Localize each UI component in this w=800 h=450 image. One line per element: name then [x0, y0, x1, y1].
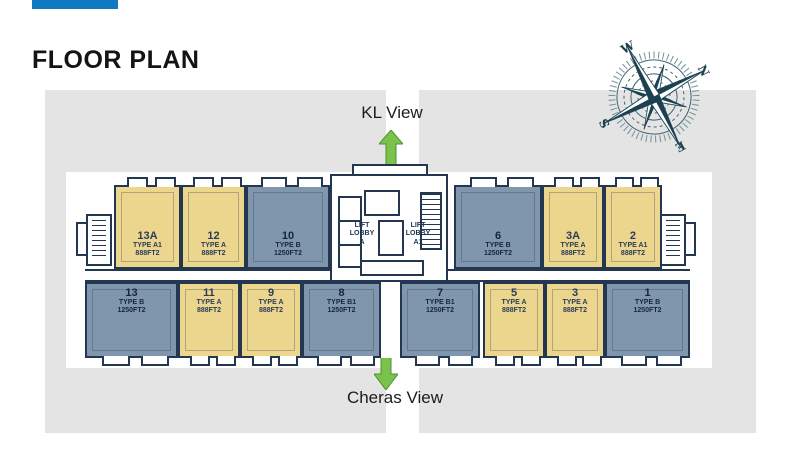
- balcony: [582, 356, 602, 366]
- unit-num: 10: [274, 230, 302, 242]
- unit-typ: TYPE A: [201, 242, 226, 250]
- balcony: [470, 177, 497, 187]
- balcony: [557, 356, 577, 366]
- unit-num: 2: [619, 230, 648, 242]
- unit-num: 9: [258, 287, 283, 299]
- unit-num: 7: [425, 287, 454, 299]
- unit-siz: 888FT2: [562, 307, 587, 315]
- balcony: [615, 177, 634, 187]
- unit-num: 12: [201, 230, 226, 242]
- balcony: [448, 356, 473, 366]
- balcony: [521, 356, 541, 366]
- unit-siz: 1250FT2: [633, 307, 661, 315]
- unit-siz: 1250FT2: [327, 307, 356, 315]
- unit-label: 8TYPE B11250FT2: [327, 287, 356, 315]
- balcony: [495, 356, 515, 366]
- balcony: [350, 356, 375, 366]
- unit-siz: 888FT2: [201, 250, 226, 258]
- balcony: [554, 177, 574, 187]
- unit-label: 5TYPE A888FT2: [501, 287, 526, 315]
- unit-label: 3TYPE A888FT2: [562, 287, 587, 315]
- unit-label: 11TYPE A888FT2: [196, 287, 221, 315]
- unit-typ: TYPE B1: [425, 299, 454, 307]
- unit-label: 9TYPE A888FT2: [258, 287, 283, 315]
- balcony: [507, 177, 534, 187]
- unit-num: 3A: [560, 230, 585, 242]
- balcony: [278, 356, 298, 366]
- unit-siz: 888FT2: [258, 307, 283, 315]
- unit-typ: TYPE B: [484, 242, 512, 250]
- unit-siz: 888FT2: [560, 250, 585, 258]
- balcony: [127, 177, 148, 187]
- unit-siz: 1250FT2: [484, 250, 512, 258]
- unit-3: 3TYPE A888FT2: [545, 282, 605, 358]
- unit-3A: 3ATYPE A888FT2: [542, 185, 604, 269]
- balcony: [252, 356, 272, 366]
- balcony: [261, 177, 287, 187]
- unit-12: 12TYPE A888FT2: [181, 185, 246, 269]
- unit-13: 13TYPE B1250FT2: [85, 282, 178, 358]
- unit-num: 11: [196, 287, 221, 299]
- slide: FLOOR PLAN N E: [0, 0, 800, 450]
- balcony: [621, 356, 647, 366]
- unit-typ: TYPE B: [117, 299, 145, 307]
- unit-11: 11TYPE A888FT2: [178, 282, 240, 358]
- balcony: [193, 177, 214, 187]
- unit-typ: TYPE A1: [133, 242, 162, 250]
- unit-2: 2TYPE A1888FT2: [604, 185, 662, 269]
- unit-label: 13ATYPE A1888FT2: [133, 230, 162, 258]
- unit-typ: TYPE A1: [619, 242, 648, 250]
- unit-typ: TYPE A: [501, 299, 526, 307]
- unit-num: 8: [327, 287, 356, 299]
- unit-6: 6TYPE B1250FT2: [454, 185, 542, 269]
- balcony: [415, 356, 440, 366]
- unit-label: 6TYPE B1250FT2: [484, 230, 512, 258]
- balcony: [640, 177, 659, 187]
- unit-siz: 888FT2: [501, 307, 526, 315]
- unit-siz: 888FT2: [619, 250, 648, 258]
- unit-num: 3: [562, 287, 587, 299]
- unit-num: 5: [501, 287, 526, 299]
- unit-siz: 1250FT2: [425, 307, 454, 315]
- unit-num: 1: [633, 287, 661, 299]
- unit-typ: TYPE B: [633, 299, 661, 307]
- unit-siz: 888FT2: [196, 307, 221, 315]
- unit-num: 13: [117, 287, 145, 299]
- unit-9: 9TYPE A888FT2: [240, 282, 302, 358]
- unit-10: 10TYPE B1250FT2: [246, 185, 330, 269]
- unit-num: 6: [484, 230, 512, 242]
- balcony: [656, 356, 682, 366]
- unit-label: 3ATYPE A888FT2: [560, 230, 585, 258]
- unit-typ: TYPE B: [274, 242, 302, 250]
- unit-siz: 888FT2: [133, 250, 162, 258]
- unit-typ: TYPE A: [258, 299, 283, 307]
- unit-label: 7TYPE B11250FT2: [425, 287, 454, 315]
- unit-siz: 1250FT2: [117, 307, 145, 315]
- unit-1: 1TYPE B1250FT2: [605, 282, 690, 358]
- balcony: [580, 177, 600, 187]
- unit-typ: TYPE A: [196, 299, 221, 307]
- unit-siz: 1250FT2: [274, 250, 302, 258]
- unit-typ: TYPE B1: [327, 299, 356, 307]
- unit-label: 2TYPE A1888FT2: [619, 230, 648, 258]
- unit-label: 13TYPE B1250FT2: [117, 287, 145, 315]
- balcony: [102, 356, 130, 366]
- balcony: [190, 356, 210, 366]
- unit-label: 10TYPE B1250FT2: [274, 230, 302, 258]
- unit-5: 5TYPE A888FT2: [483, 282, 545, 358]
- unit-7: 7TYPE B11250FT2: [400, 282, 480, 358]
- unit-13A: 13ATYPE A1888FT2: [114, 185, 181, 269]
- balcony: [141, 356, 169, 366]
- unit-typ: TYPE A: [560, 242, 585, 250]
- balcony: [221, 177, 242, 187]
- balcony: [155, 177, 176, 187]
- balcony: [297, 177, 323, 187]
- balcony: [317, 356, 342, 366]
- unit-label: 12TYPE A888FT2: [201, 230, 226, 258]
- unit-label: 1TYPE B1250FT2: [633, 287, 661, 315]
- unit-num: 13A: [133, 230, 162, 242]
- unit-8: 8TYPE B11250FT2: [302, 282, 381, 358]
- floor-plan-units: 13ATYPE A1888FT212TYPE A888FT210TYPE B12…: [0, 0, 800, 450]
- unit-typ: TYPE A: [562, 299, 587, 307]
- balcony: [216, 356, 236, 366]
